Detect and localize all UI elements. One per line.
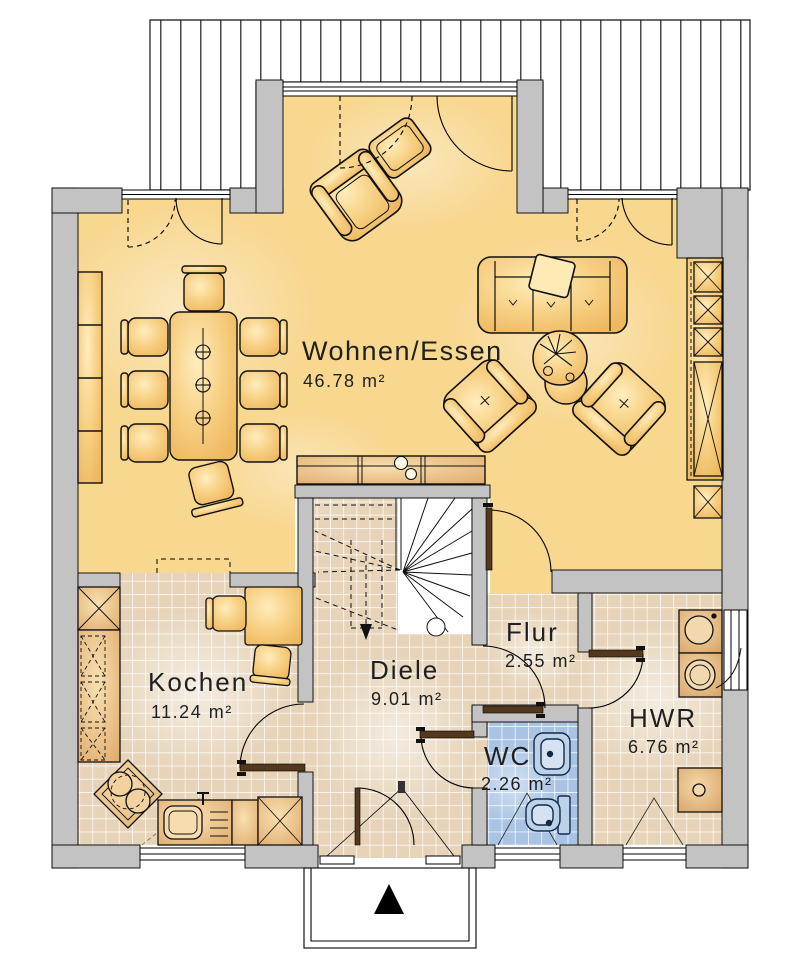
room-area-flur: 2.55 m² (505, 651, 577, 671)
window-living-ne (568, 190, 677, 199)
freezer (678, 768, 722, 812)
kitchen-chair (250, 644, 294, 686)
cabinet-x (258, 797, 302, 845)
dining-chair (182, 266, 226, 311)
floor-plan-drawing: Wohnen/Essen 46.78 m² Kochen 11.24 m² Di… (0, 0, 800, 966)
room-label-kochen: Kochen (148, 667, 248, 697)
room-area-diele: 9.01 m² (371, 689, 443, 709)
stair-counter (297, 456, 485, 484)
room-label-wohnen: Wohnen/Essen (302, 336, 503, 366)
floor-plan-page: Wohnen/Essen 46.78 m² Kochen 11.24 m² Di… (0, 0, 800, 966)
wall-unit (687, 258, 723, 518)
window-kitchen-south (140, 848, 245, 860)
room-label-wc: WC (484, 741, 531, 771)
door-leaf (589, 650, 643, 657)
cabinet-box (694, 262, 722, 292)
kitchen-table (245, 587, 302, 645)
dining-chair (121, 371, 168, 409)
washbasin (534, 733, 570, 775)
door-leaf (240, 764, 305, 771)
cabinet-box (694, 296, 722, 324)
window-bay-terrace-door (283, 82, 517, 96)
window-hwr-east (724, 610, 747, 690)
dining-chair (121, 424, 168, 462)
kitchen-chair (206, 596, 246, 631)
entrance-porch (304, 868, 476, 948)
door-leaf (420, 731, 474, 738)
toilet (526, 796, 570, 834)
door-leaf (486, 508, 492, 570)
room-label-hwr: HWR (629, 703, 697, 733)
dining-chair (240, 318, 287, 356)
dining-chair (240, 424, 287, 462)
room-label-flur: Flur (506, 617, 559, 647)
door-leaf (483, 706, 543, 713)
door-leaf (355, 788, 360, 845)
dining-chair (240, 371, 287, 409)
room-area-wohnen: 46.78 m² (303, 371, 386, 391)
room-area-kochen: 11.24 m² (151, 702, 233, 722)
flur-door-floor (472, 645, 487, 708)
room-area-hwr: 6.76 m² (628, 737, 700, 757)
window-living-nw (122, 190, 230, 199)
dining-sideboard (78, 272, 102, 483)
dining-chair (121, 318, 168, 356)
sofa (478, 254, 627, 333)
window-hwr-south (623, 848, 686, 860)
cabinet-box (694, 486, 722, 518)
dryer (679, 653, 722, 697)
sink-unit (158, 793, 232, 845)
counter-left (78, 630, 120, 762)
base-cabinet (232, 800, 258, 845)
room-area-wc: 2.26 m² (481, 774, 553, 794)
cabinet-box (694, 328, 722, 356)
tall-cabinet (78, 587, 120, 630)
room-label-diele: Diele (370, 655, 439, 685)
stair-newel-post (427, 618, 445, 636)
cabinet-box-tall (694, 362, 722, 476)
window-wc-south (495, 848, 560, 860)
washing-machine (679, 610, 722, 653)
living-flur-doorway-floor (490, 570, 554, 594)
